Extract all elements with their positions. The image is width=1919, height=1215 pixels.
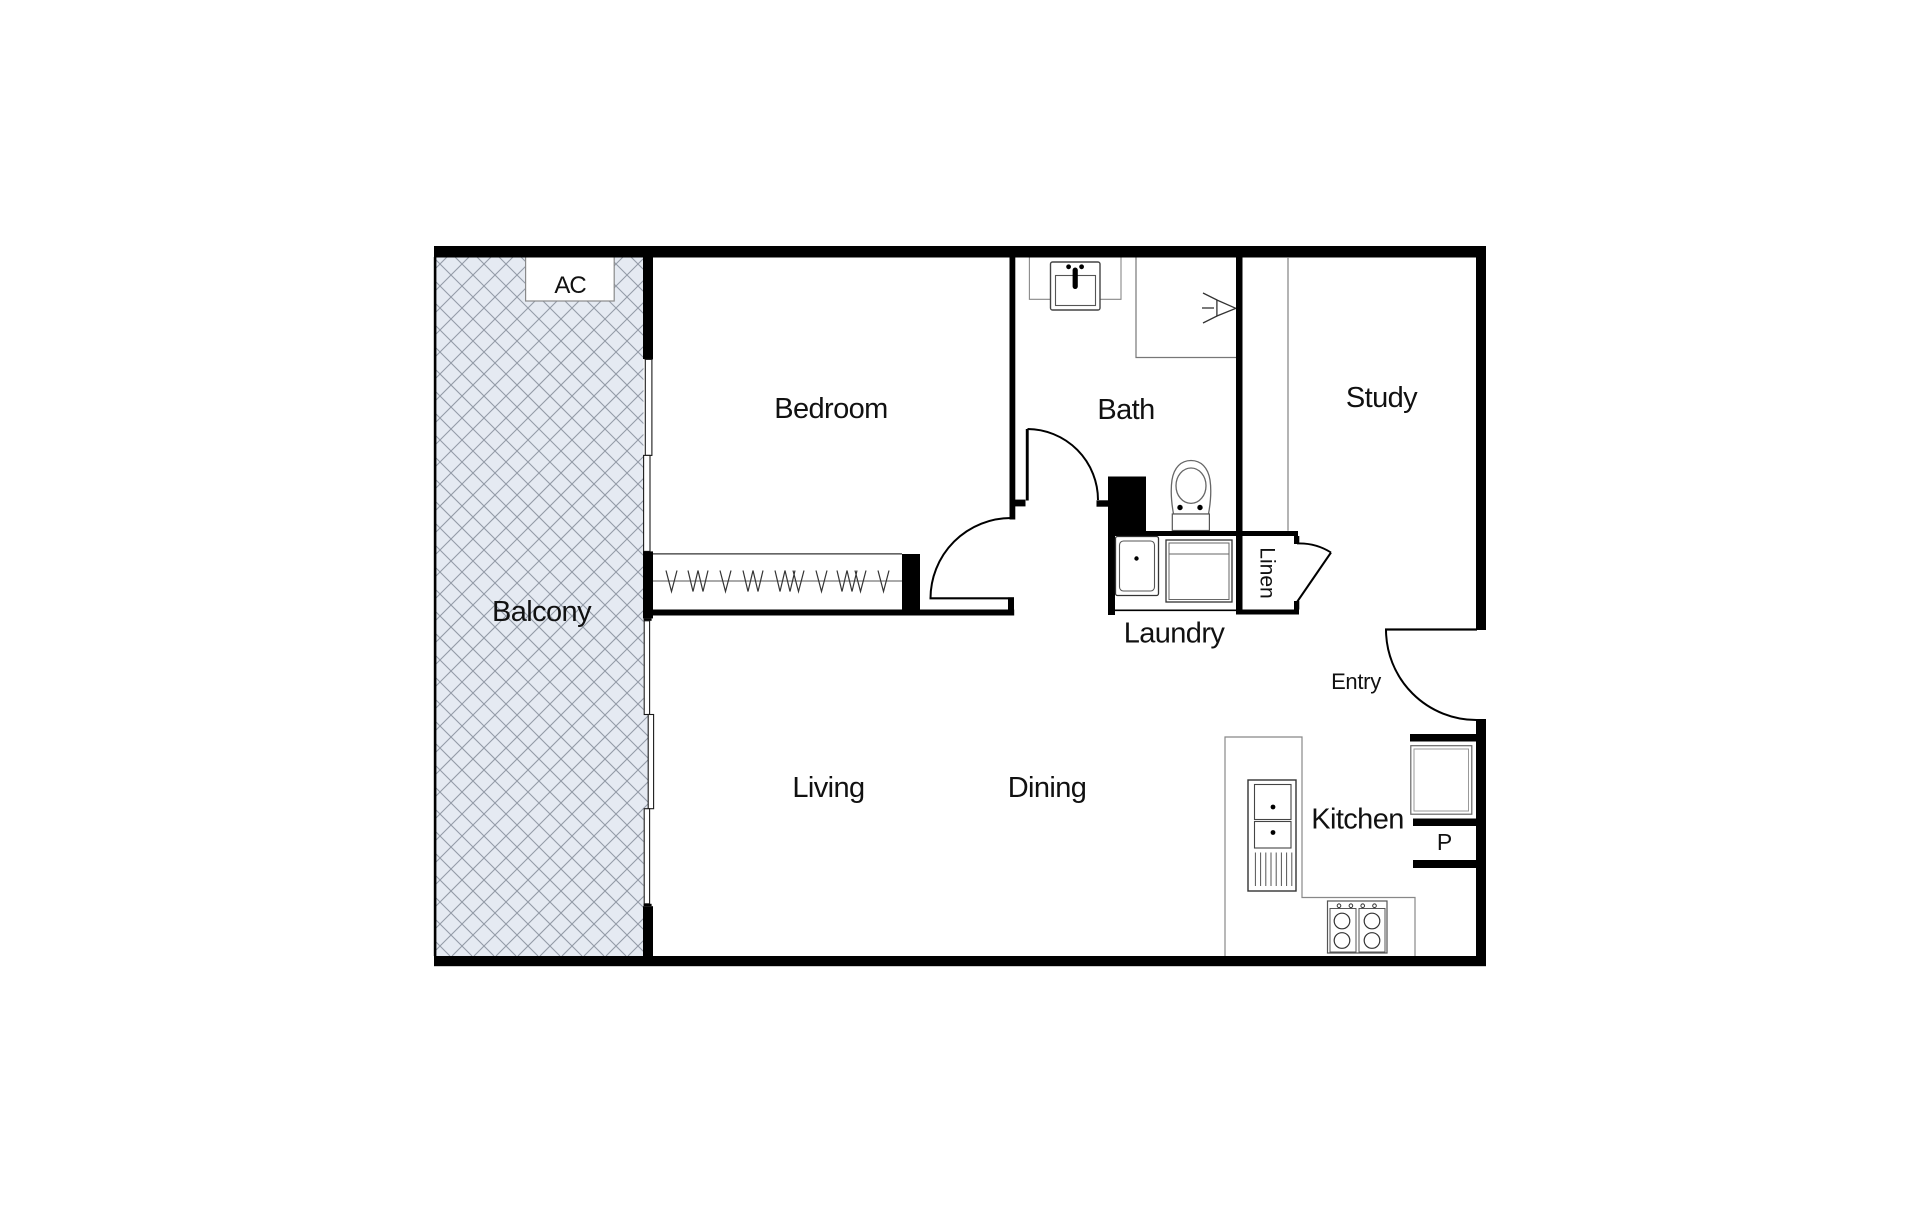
svg-text:Bath: Bath <box>1097 394 1154 426</box>
svg-text:Laundry: Laundry <box>1124 618 1226 650</box>
svg-text:AC: AC <box>554 272 586 299</box>
svg-text:P: P <box>1437 829 1452 855</box>
svg-text:Balcony: Balcony <box>492 596 592 628</box>
svg-text:Kitchen: Kitchen <box>1311 804 1404 836</box>
svg-text:Bedroom: Bedroom <box>774 393 887 425</box>
svg-text:Entry: Entry <box>1331 669 1381 694</box>
svg-text:Living: Living <box>792 772 864 804</box>
svg-text:Linen: Linen <box>1256 547 1279 598</box>
svg-text:Study: Study <box>1346 382 1418 414</box>
svg-text:Dining: Dining <box>1008 772 1087 804</box>
